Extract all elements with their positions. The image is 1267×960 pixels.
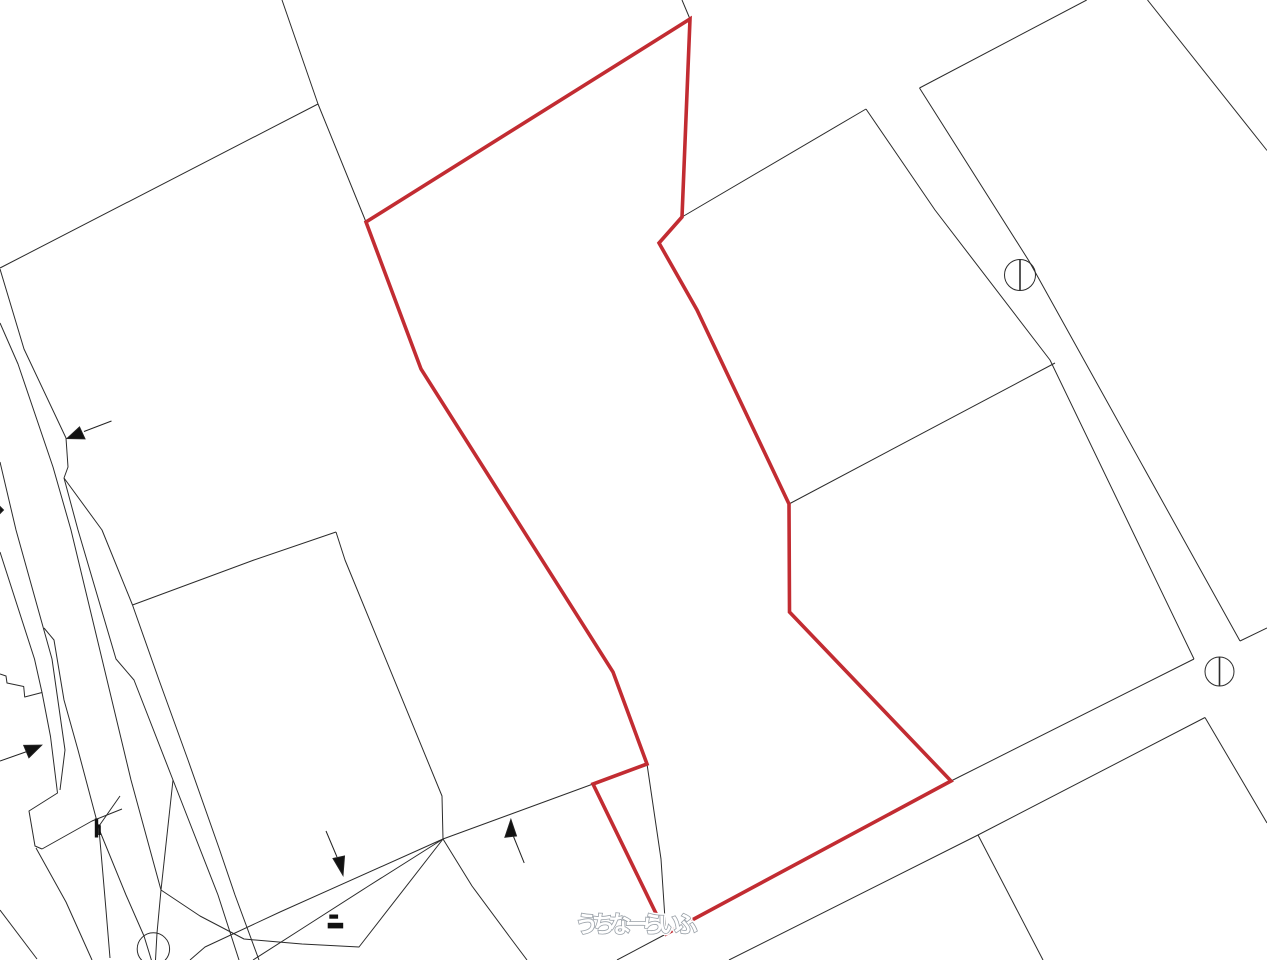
svg-text:うちなーらいふ: うちなーらいふ xyxy=(575,911,697,937)
